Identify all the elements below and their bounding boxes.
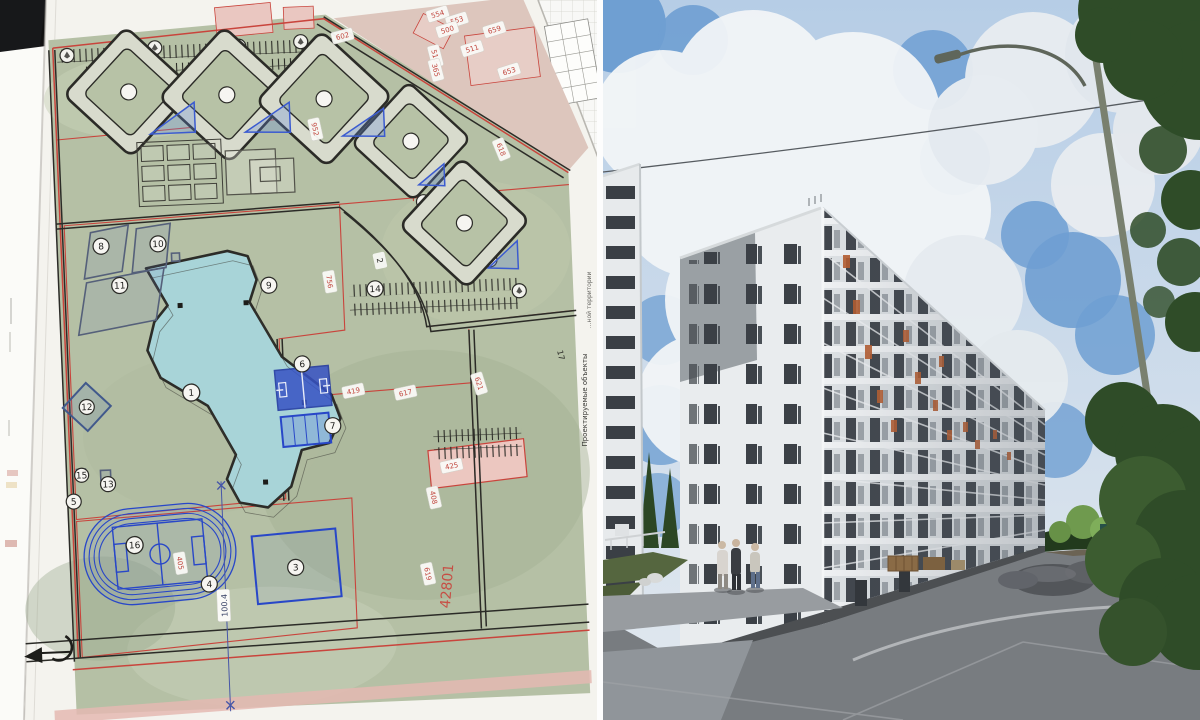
svg-text:Проектируемые объекты: Проектируемые объекты <box>581 353 589 446</box>
building-marker <box>219 87 236 104</box>
building-marker <box>316 90 333 107</box>
marker-16: 16 <box>129 541 141 551</box>
building-marker <box>456 215 473 232</box>
marker-11: 11 <box>114 281 126 291</box>
dimension-label: 100.4 <box>220 594 230 617</box>
entrance <box>899 568 910 592</box>
map-area: 100.4 42801 1 3 4 5 6 7 8 9 10 11 12 13 <box>0 0 600 720</box>
marker-1: 1 <box>188 389 194 399</box>
collage: 100.4 42801 1 3 4 5 6 7 8 9 10 11 12 13 <box>0 0 1200 720</box>
rocks <box>639 578 651 586</box>
marker-5: 5 <box>71 498 77 508</box>
marker-14: 14 <box>369 285 381 295</box>
marker-12: 12 <box>81 403 93 413</box>
turn-hook-bar <box>40 652 72 653</box>
marker-6: 6 <box>299 360 305 370</box>
site-plan-photo: 100.4 42801 1 3 4 5 6 7 8 9 10 11 12 13 <box>0 0 600 720</box>
site-plan-svg: 100.4 42801 1 3 4 5 6 7 8 9 10 11 12 13 <box>0 0 600 720</box>
building-photo <box>603 0 1200 720</box>
edge-label-bottom: Проектируемые объекты <box>581 353 589 446</box>
marker-15: 15 <box>76 471 88 481</box>
marker-4: 4 <box>206 580 212 590</box>
marker-7: 7 <box>330 422 336 432</box>
gravel-pile <box>998 571 1038 589</box>
marker-9: 9 <box>266 281 272 291</box>
building-photo-svg <box>603 0 1200 720</box>
marker-3: 3 <box>293 563 299 573</box>
adjacent-building <box>603 164 643 620</box>
building-marker <box>403 133 420 150</box>
marker-13: 13 <box>102 480 114 490</box>
marker-10: 10 <box>152 240 164 250</box>
svg-text:…ной территории: …ной территории <box>586 271 593 328</box>
entrance <box>855 580 867 606</box>
marker-8: 8 <box>98 242 104 252</box>
garden-plots <box>137 139 224 206</box>
edge-label-top: …ной территории <box>586 271 593 328</box>
volleyball-court <box>281 413 332 447</box>
building-marker <box>120 84 137 101</box>
